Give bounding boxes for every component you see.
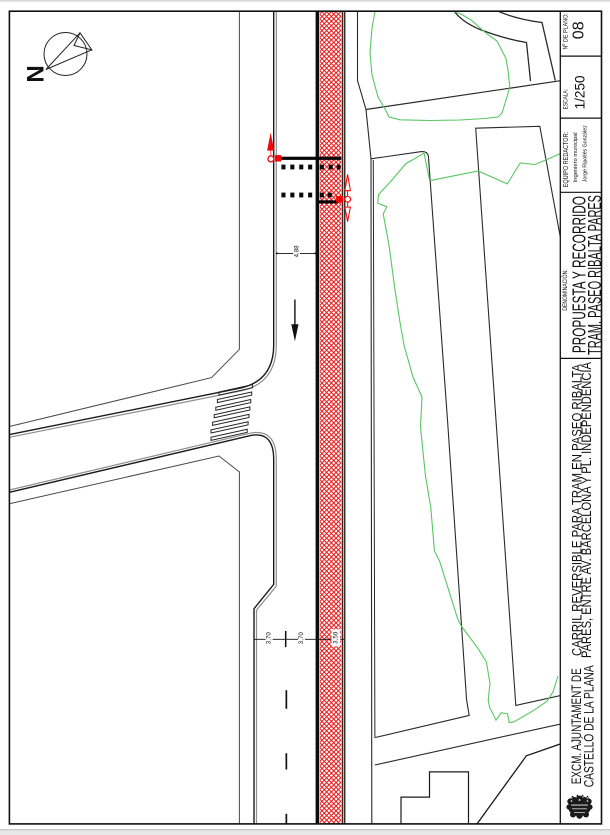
svg-text:08: 08 — [571, 21, 588, 39]
svg-text:Jorge Ripollés González: Jorge Ripollés González — [583, 125, 589, 182]
svg-text:3,70: 3,70 — [266, 632, 273, 645]
svg-text:EQUIPO REDACTOR:: EQUIPO REDACTOR: — [563, 132, 570, 188]
svg-text:TRAM. PASEO RIBALTA PARES: TRAM. PASEO RIBALTA PARES — [585, 195, 605, 355]
svg-text:4,88: 4,88 — [293, 245, 300, 258]
svg-text:Ingeniero municipal: Ingeniero municipal — [573, 132, 579, 182]
svg-text:3,70: 3,70 — [298, 632, 305, 645]
svg-text:DENOMINACIÓN:: DENOMINACIÓN: — [560, 269, 569, 310]
svg-text:3,50: 3,50 — [333, 631, 340, 644]
svg-text:1/250: 1/250 — [572, 75, 587, 109]
svg-text:Nº DE PLANO:: Nº DE PLANO: — [563, 13, 570, 50]
svg-text:CASTELLÓ DE LA PLANA: CASTELLÓ DE LA PLANA — [581, 665, 597, 787]
svg-text:PARES, ENTRE AV. BARCELONA Y P: PARES, ENTRE AV. BARCELONA Y PL. INDEPEN… — [579, 362, 594, 658]
svg-text:ESCALA:: ESCALA: — [563, 89, 570, 110]
svg-text:N: N — [23, 65, 50, 82]
